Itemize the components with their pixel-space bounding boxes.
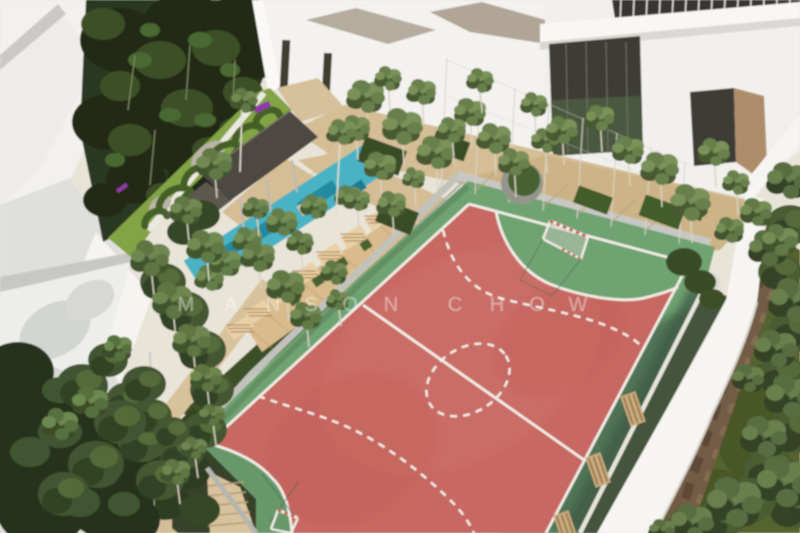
svg-text:O: O	[342, 294, 358, 316]
svg-text:H: H	[490, 294, 504, 316]
svg-text:O: O	[529, 294, 545, 316]
svg-text:C: C	[448, 294, 462, 316]
svg-text:S: S	[304, 294, 317, 316]
svg-text:N: N	[266, 294, 280, 316]
svg-text:N: N	[384, 294, 398, 316]
svg-text:M: M	[178, 294, 195, 316]
svg-text:A: A	[224, 294, 238, 316]
svg-text:W: W	[569, 294, 588, 316]
